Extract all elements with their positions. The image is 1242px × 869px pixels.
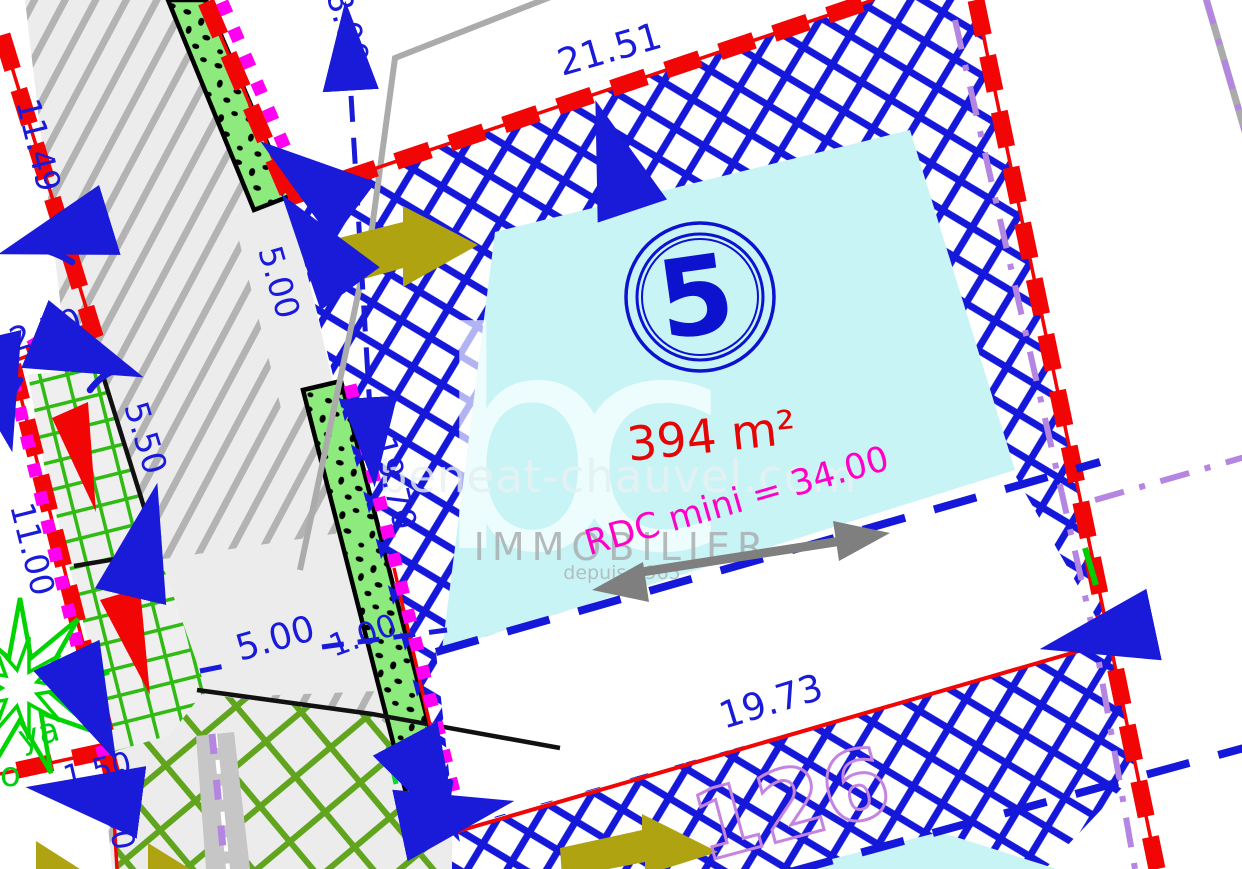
vegetation-label-fragment-2: o — [0, 755, 21, 795]
site-plan-svg: bc beneat-chauvel.com IMMOBILIER depuis … — [0, 0, 1242, 869]
site-plan: bc beneat-chauvel.com IMMOBILIER depuis … — [0, 0, 1242, 869]
